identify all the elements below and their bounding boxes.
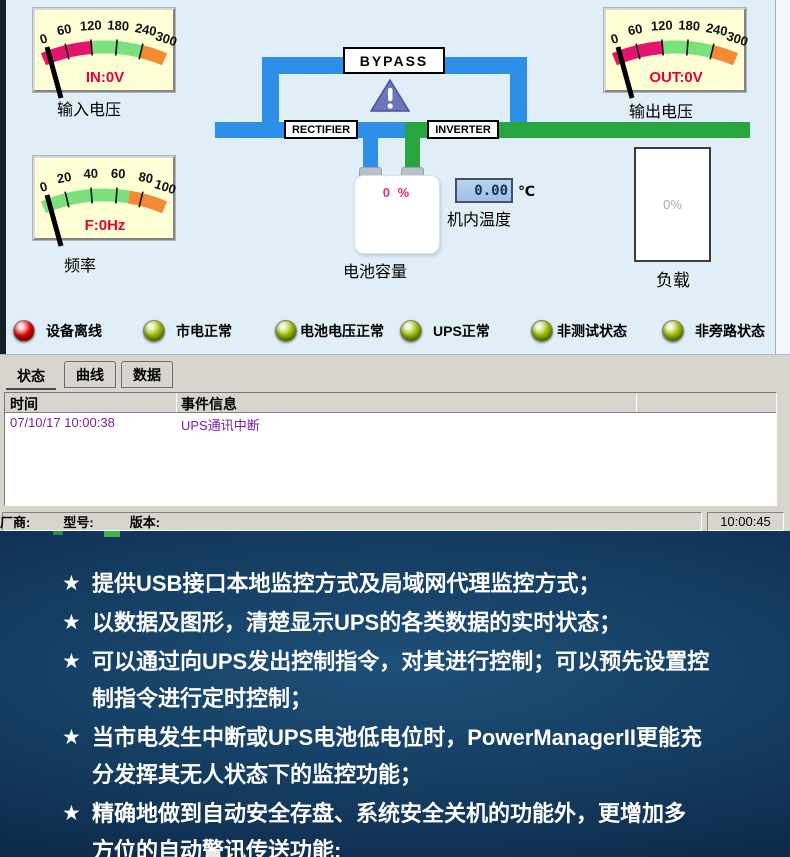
gauge-tick-label: 60 xyxy=(56,21,73,38)
feature-line: 精确地做到自动安全存盘、系统安全关机的功能外，更增加多 xyxy=(92,795,686,832)
gauge-dial: 0 60 120 180 240 300 IN:0V xyxy=(35,10,173,106)
feature-line: 当市电发生中断或UPS电池低电位时，PowerManagerII更能充 xyxy=(92,719,702,756)
gauge-tick-label: 120 xyxy=(80,17,102,33)
output-voltage-gauge: 0 60 120 180 240 300 OUT:0V xyxy=(604,8,746,92)
frequency-caption: 频率 xyxy=(64,252,96,276)
gauge-tick-label: 300 xyxy=(154,28,179,49)
status-ups-normal: UPS正常 xyxy=(400,320,490,342)
rectifier-label: RECTIFIER xyxy=(284,120,358,139)
bypass-text: BYPASS xyxy=(360,53,429,69)
clock-panel: 10:00:45 xyxy=(707,512,784,531)
feature-item: ★ 当市电发生中断或UPS电池低电位时，PowerManagerII更能充 分发… xyxy=(62,719,762,793)
gauge-tick-label: 0 xyxy=(38,30,50,47)
led-indicator xyxy=(275,320,297,342)
load-value: 0% xyxy=(663,197,682,212)
inverter-label: INVERTER xyxy=(427,120,499,139)
star-bullet-icon: ★ xyxy=(62,565,92,602)
event-table: 时间 事件信息 07/10/17 10:00:38 UPS通讯中断 xyxy=(4,392,777,506)
manufacturer-label: 厂商: xyxy=(0,512,30,531)
screen-artifact xyxy=(53,531,63,535)
gauge-tick-label: 120 xyxy=(651,17,673,33)
input-voltage-gauge: 0 60 120 180 240 300 IN:0V xyxy=(33,8,175,92)
gauge-tick-label: 60 xyxy=(111,166,126,182)
bypass-pipe-right-riser xyxy=(510,57,527,122)
inverter-text: INVERTER xyxy=(435,124,491,136)
input-voltage-caption: 输入电压 xyxy=(57,96,121,120)
led-label: 电池电压正常 xyxy=(300,321,384,341)
load-indicator: 0% xyxy=(634,147,711,262)
temperature-unit: ℃ xyxy=(518,183,535,200)
feature-item: ★ 可以通过向UPS发出控制指令，对其进行控制；可以预先设置控 制指令进行定时控… xyxy=(62,643,762,717)
feature-section: ★ 提供USB接口本地监控方式及局域网代理监控方式； ★ 以数据及图形，清楚显示… xyxy=(0,531,790,857)
led-label: 设备离线 xyxy=(46,321,102,341)
star-bullet-icon: ★ xyxy=(62,719,92,793)
column-header-time: 时间 xyxy=(5,393,176,412)
frequency-gauge: 0 20 40 60 80 100 F:0Hz xyxy=(33,156,175,240)
status-not-bypass: 非旁路状态 xyxy=(662,320,765,342)
gauge-tick-label: 60 xyxy=(627,21,644,38)
feature-line: 以数据及图形，清楚显示UPS的各类数据的实时状态； xyxy=(92,604,621,641)
feature-item: ★ 以数据及图形，清楚显示UPS的各类数据的实时状态； xyxy=(62,604,762,641)
gauge-tick-label: 20 xyxy=(56,169,73,186)
gauge-tick-label: 0 xyxy=(38,178,50,195)
version-label: 版本: xyxy=(130,512,160,531)
gauge-tick-label: 240 xyxy=(705,20,729,39)
status-device-offline: 设备离线 xyxy=(13,320,102,342)
tab-curve[interactable]: 曲线 xyxy=(64,361,116,388)
clock-value: 10:00:45 xyxy=(720,514,771,529)
event-message-cell: UPS通讯中断 xyxy=(176,413,636,431)
temperature-display: 0.00 xyxy=(455,178,513,203)
page: 0 60 120 180 240 300 IN:0V 输入电压 0 2 xyxy=(0,0,790,857)
tab-status[interactable]: 状态 xyxy=(6,363,56,390)
gauge-tick-label: 300 xyxy=(725,28,750,49)
gauge-tick-label: 180 xyxy=(678,17,700,33)
feature-line: 可以通过向UPS发出控制指令，对其进行控制；可以预先设置控 xyxy=(92,643,709,680)
gauge-tick-label: 240 xyxy=(134,20,158,39)
model-label: 型号: xyxy=(63,512,93,531)
load-caption: 负载 xyxy=(656,266,690,291)
led-label: UPS正常 xyxy=(433,321,490,341)
gauge-tick-label: 80 xyxy=(137,169,154,186)
tab-data[interactable]: 数据 xyxy=(121,361,173,388)
led-label: 非测试状态 xyxy=(557,321,627,341)
led-indicator xyxy=(662,320,684,342)
gauge-value-label: F:0Hz xyxy=(85,217,126,234)
status-not-testing: 非测试状态 xyxy=(531,320,627,342)
status-bar-info-panel: 厂商: 型号: 版本: xyxy=(2,512,702,531)
gauge-tick-label: 180 xyxy=(107,17,129,33)
lower-panel: 状态 曲线 数据 时间 事件信息 07/10/17 10:00:38 UPS通讯… xyxy=(0,354,790,533)
arc-segment-high xyxy=(141,52,165,60)
rectifier-text: RECTIFIER xyxy=(292,124,350,136)
led-indicator xyxy=(143,320,165,342)
screen-artifact xyxy=(104,531,120,537)
battery-capacity-indicator: 0 % xyxy=(354,175,440,254)
battery-capacity-value: 0 % xyxy=(355,185,439,200)
star-bullet-icon: ★ xyxy=(62,643,92,717)
star-bullet-icon: ★ xyxy=(62,795,92,857)
feature-item: ★ 提供USB接口本地监控方式及局域网代理监控方式； xyxy=(62,565,762,602)
gauge-tick-label: 0 xyxy=(609,30,621,47)
warning-icon xyxy=(370,79,410,113)
led-indicator xyxy=(13,320,35,342)
bypass-label: BYPASS xyxy=(343,47,445,74)
gauge-dial: 0 60 120 180 240 300 OUT:0V xyxy=(606,10,744,106)
feature-line: 方位的自动警讯传送功能; xyxy=(92,832,686,857)
column-separator xyxy=(636,393,637,412)
gauge-tick-label: 40 xyxy=(83,166,98,182)
star-bullet-icon: ★ xyxy=(62,604,92,641)
led-label: 非旁路状态 xyxy=(695,321,765,341)
event-time-cell: 07/10/17 10:00:38 xyxy=(5,413,176,431)
ups-monitor-window: 0 60 120 180 240 300 IN:0V 输入电压 0 2 xyxy=(0,0,790,533)
column-header-event: 事件信息 xyxy=(176,393,636,412)
arc-segment-high xyxy=(712,52,736,60)
table-row[interactable]: 07/10/17 10:00:38 UPS通讯中断 xyxy=(5,413,776,431)
gauge-tick-label: 100 xyxy=(153,176,178,197)
arc-segment-high xyxy=(129,197,165,207)
gauge-value-label: IN:0V xyxy=(86,69,124,86)
feature-line: 制指令进行定时控制； xyxy=(92,680,709,717)
gauge-dial: 0 20 40 60 80 100 F:0Hz xyxy=(35,158,173,254)
bypass-pipe-left-riser xyxy=(262,57,279,122)
battery-caption: 电池容量 xyxy=(343,258,407,282)
led-indicator xyxy=(531,320,553,342)
temperature-caption: 机内温度 xyxy=(447,206,511,230)
feature-line: 分发挥其无人状态下的监控功能； xyxy=(92,756,702,793)
status-mains-normal: 市电正常 xyxy=(143,320,232,342)
event-table-header: 时间 事件信息 xyxy=(5,393,776,413)
led-label: 市电正常 xyxy=(176,321,232,341)
feature-list: ★ 提供USB接口本地监控方式及局域网代理监控方式； ★ 以数据及图形，清楚显示… xyxy=(62,565,762,857)
led-indicator xyxy=(400,320,422,342)
output-voltage-caption: 输出电压 xyxy=(629,98,693,122)
status-battery-voltage-normal: 电池电压正常 xyxy=(275,320,384,342)
feature-line: 提供USB接口本地监控方式及局域网代理监控方式； xyxy=(92,565,600,602)
column-separator xyxy=(176,393,177,412)
gauge-value-label: OUT:0V xyxy=(649,69,702,86)
feature-item: ★ 精确地做到自动安全存盘、系统安全关机的功能外，更增加多 方位的自动警讯传送功… xyxy=(62,795,762,857)
